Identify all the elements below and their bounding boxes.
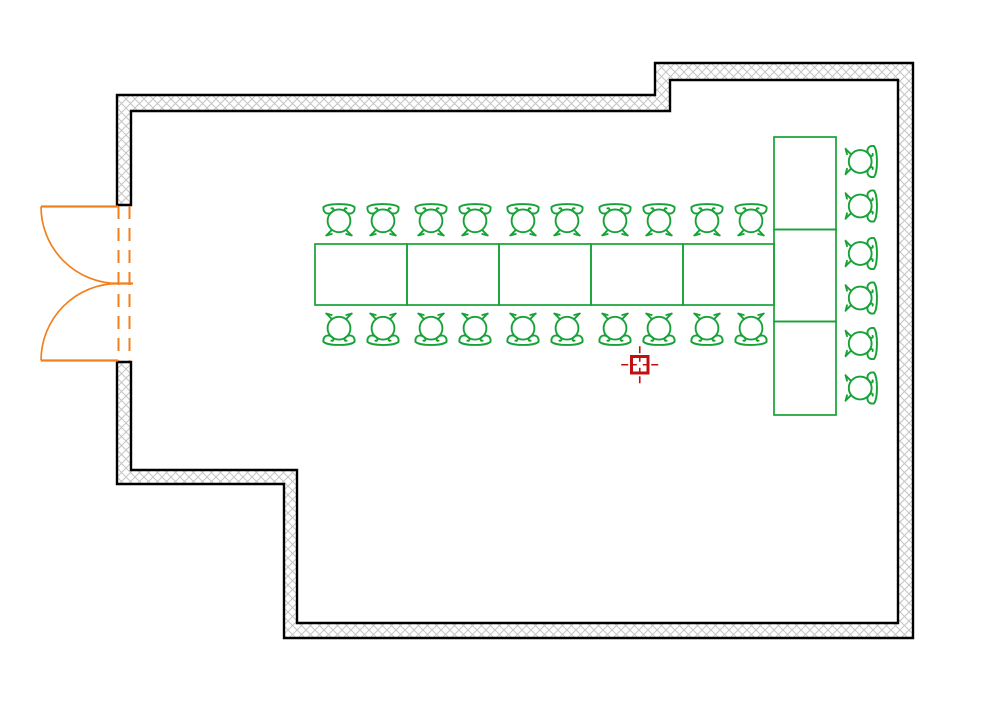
door-swing-arc-bottom — [41, 284, 118, 361]
chair-glyph — [849, 195, 872, 218]
chair-glyph — [692, 204, 723, 207]
chair[interactable] — [367, 314, 398, 345]
chair[interactable] — [643, 204, 674, 235]
chair-glyph — [644, 204, 675, 207]
chair-glyph — [368, 204, 399, 207]
door-swing-arc-top — [41, 207, 118, 284]
banquet-table[interactable] — [499, 244, 591, 305]
chair-glyph — [736, 204, 767, 207]
chair[interactable] — [846, 146, 877, 177]
chair-glyph — [849, 150, 872, 173]
chair-glyph — [464, 209, 487, 232]
chair-glyph — [368, 342, 399, 345]
chair-glyph — [849, 332, 872, 355]
chair[interactable] — [599, 204, 630, 235]
chair-glyph — [460, 204, 491, 207]
chair[interactable] — [599, 314, 630, 345]
chair-glyph — [849, 377, 872, 400]
chair-glyph — [874, 238, 877, 269]
chair[interactable] — [507, 204, 538, 235]
chair[interactable] — [643, 314, 674, 345]
chair-glyph — [512, 209, 535, 232]
chair-glyph — [508, 342, 539, 345]
chair[interactable] — [459, 204, 490, 235]
double-entry-door[interactable] — [41, 206, 133, 361]
floor-box-marker[interactable] — [621, 346, 658, 383]
chair-glyph — [604, 317, 627, 340]
chair[interactable] — [846, 238, 877, 269]
banquet-table[interactable] — [315, 244, 407, 305]
chair[interactable] — [691, 204, 722, 235]
chair-glyph — [874, 328, 877, 359]
chair[interactable] — [551, 314, 582, 345]
chair-glyph — [600, 342, 631, 345]
chair-glyph — [324, 204, 355, 207]
banquet-table[interactable] — [774, 137, 836, 230]
banquet-table[interactable] — [407, 244, 499, 305]
chair-glyph — [552, 204, 583, 207]
chair-glyph — [874, 283, 877, 314]
banquet-table[interactable] — [774, 230, 836, 322]
chair-glyph — [324, 342, 355, 345]
chair-glyph — [512, 317, 535, 340]
chair[interactable] — [846, 372, 877, 403]
chair-glyph — [416, 342, 447, 345]
chair[interactable] — [691, 314, 722, 345]
cad-drawing-area — [0, 0, 1000, 707]
chair[interactable] — [367, 204, 398, 235]
chair-glyph — [372, 209, 395, 232]
chair-glyph — [874, 373, 877, 404]
chair-glyph — [328, 317, 351, 340]
chair-glyph — [874, 191, 877, 222]
chair-glyph — [874, 146, 877, 177]
chair-glyph — [420, 317, 443, 340]
banquet-table[interactable] — [683, 244, 774, 305]
chair[interactable] — [415, 314, 446, 345]
chair-glyph — [740, 209, 763, 232]
chair[interactable] — [735, 204, 766, 235]
chair[interactable] — [323, 314, 354, 345]
chair-glyph — [420, 209, 443, 232]
chair-glyph — [740, 317, 763, 340]
chair[interactable] — [507, 314, 538, 345]
banquet-table[interactable] — [774, 322, 836, 416]
chair-glyph — [696, 317, 719, 340]
banquet-table[interactable] — [591, 244, 683, 305]
chair[interactable] — [846, 282, 877, 313]
chair-glyph — [372, 317, 395, 340]
chair-glyph — [552, 342, 583, 345]
chair-glyph — [604, 209, 627, 232]
chair-glyph — [696, 209, 719, 232]
chair-glyph — [849, 242, 872, 265]
floor-plan[interactable] — [0, 0, 1000, 707]
chair[interactable] — [323, 204, 354, 235]
exterior-wall[interactable] — [117, 63, 913, 638]
chair-glyph — [556, 209, 579, 232]
chair-glyph — [464, 317, 487, 340]
chair[interactable] — [459, 314, 490, 345]
chair[interactable] — [846, 328, 877, 359]
chair-glyph — [556, 317, 579, 340]
chair-glyph — [736, 342, 767, 345]
chair-glyph — [648, 317, 671, 340]
chair-glyph — [648, 209, 671, 232]
chair-glyph — [692, 342, 723, 345]
chair-glyph — [416, 204, 447, 207]
chair-glyph — [644, 342, 675, 345]
chair-glyph — [600, 204, 631, 207]
chair[interactable] — [846, 190, 877, 221]
chair[interactable] — [415, 204, 446, 235]
chair-glyph — [508, 204, 539, 207]
chair-glyph — [460, 342, 491, 345]
chair-glyph — [849, 287, 872, 310]
chair-glyph — [328, 209, 351, 232]
chair[interactable] — [735, 314, 766, 345]
chair[interactable] — [551, 204, 582, 235]
